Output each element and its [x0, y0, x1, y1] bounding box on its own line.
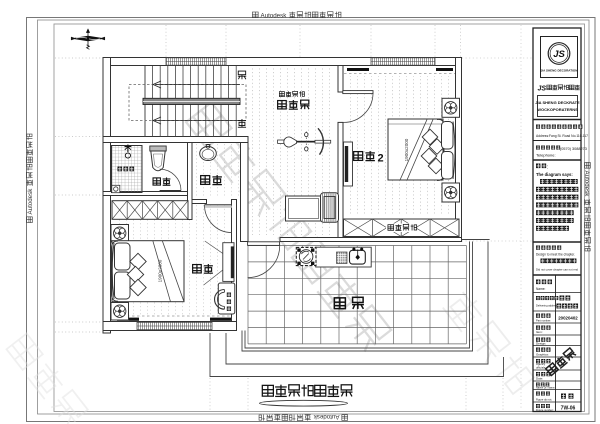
svg-text:Delivering address:: Delivering address:: [536, 304, 558, 308]
svg-text:JIA SHENG DECKRATE: JIA SHENG DECKRATE: [535, 100, 580, 105]
svg-text:Name:: Name:: [536, 287, 546, 291]
svg-text:1900x2000: 1900x2000: [158, 259, 163, 282]
svg-text:Autodesk: Autodesk: [27, 188, 34, 215]
svg-text:1900x2000: 1900x2000: [404, 138, 409, 161]
svg-text:Autodesk: Autodesk: [583, 171, 590, 198]
svg-text:20020402: 20020402: [558, 316, 578, 321]
svg-text:The diagram says:: The diagram says:: [536, 172, 573, 177]
svg-text:Item:: Item:: [536, 330, 543, 334]
svg-text:(0570) 3088273: (0570) 3088273: [560, 147, 587, 151]
svg-text:Telephone:: Telephone:: [536, 153, 556, 158]
svg-text:Figure number:: Figure number:: [536, 408, 554, 412]
svg-text:2: 2: [378, 153, 384, 165]
svg-text:Graphics:: Graphics:: [536, 353, 549, 357]
svg-text:Autodesk: Autodesk: [261, 12, 288, 19]
svg-text:Part number:: Part number:: [536, 319, 551, 323]
svg-text:Native Dr. Name:: Native Dr. Name:: [536, 387, 555, 390]
svg-text:Figure do not:: Figure do not:: [536, 398, 552, 402]
svg-text:Did not cover chapter can not: Did not cover chapter can not end: [536, 268, 578, 272]
svg-text:Autodesk: Autodesk: [313, 413, 340, 420]
svg-text:Design to meet the chapter.: Design to meet the chapter.: [536, 253, 575, 257]
svg-text:7W-06: 7W-06: [561, 406, 576, 412]
svg-text:JS: JS: [553, 49, 565, 60]
svg-text:Date:: Date:: [536, 377, 543, 381]
svg-text:officials:: officials:: [536, 366, 546, 370]
svg-text:JIA SHENG DECORATION: JIA SHENG DECORATION: [541, 69, 578, 73]
svg-text:Address:Fang St. Road No.110-1: Address:Fang St. Road No.110-117: [536, 134, 588, 138]
svg-text:WOCKOPORATERNS: WOCKOPORATERNS: [537, 107, 578, 112]
svg-text:Design:: Design:: [536, 342, 546, 346]
svg-text:JS: JS: [538, 86, 547, 93]
svg-text::: :: [547, 165, 548, 171]
